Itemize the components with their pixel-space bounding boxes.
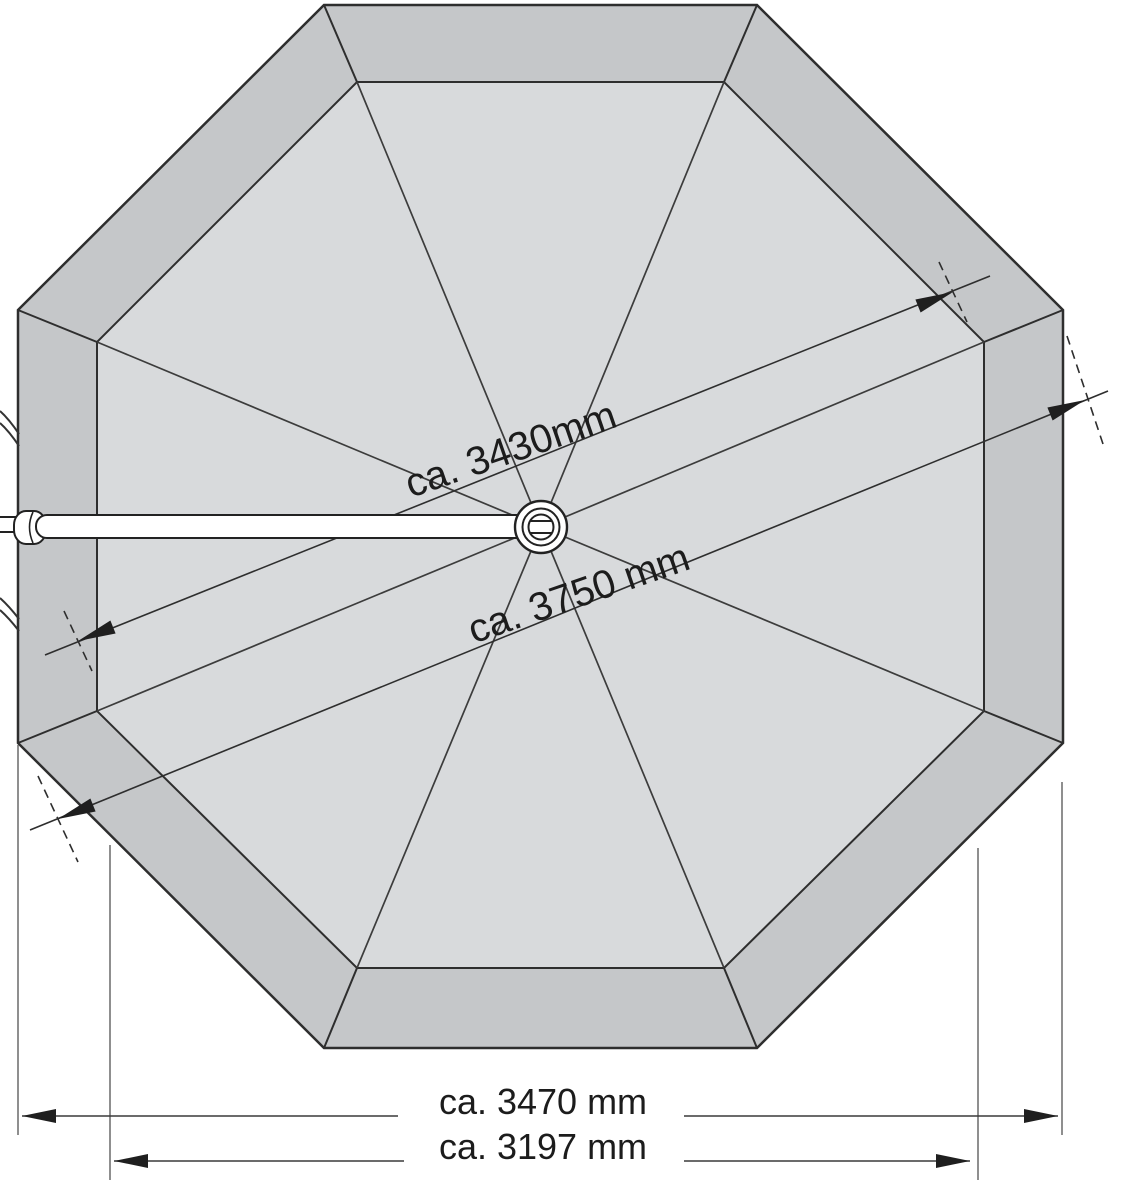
arrowhead [1024,1109,1058,1123]
dimension-label-3470: ca. 3470 mm [439,1081,647,1122]
center-hub [515,501,567,553]
arrowhead [936,1154,970,1168]
pole-shaft [36,515,538,538]
oblique-tick [1067,336,1103,444]
parasol-top-view-svg: ca. 3430mm ca. 3750 mm ca. 3470 mm ca. 3… [0,0,1130,1200]
parasol-technical-drawing: ca. 3430mm ca. 3750 mm ca. 3470 mm ca. 3… [0,0,1130,1200]
arrowhead [22,1109,56,1123]
dimension-label-3197: ca. 3197 mm [439,1126,647,1167]
arrowhead [114,1154,148,1168]
